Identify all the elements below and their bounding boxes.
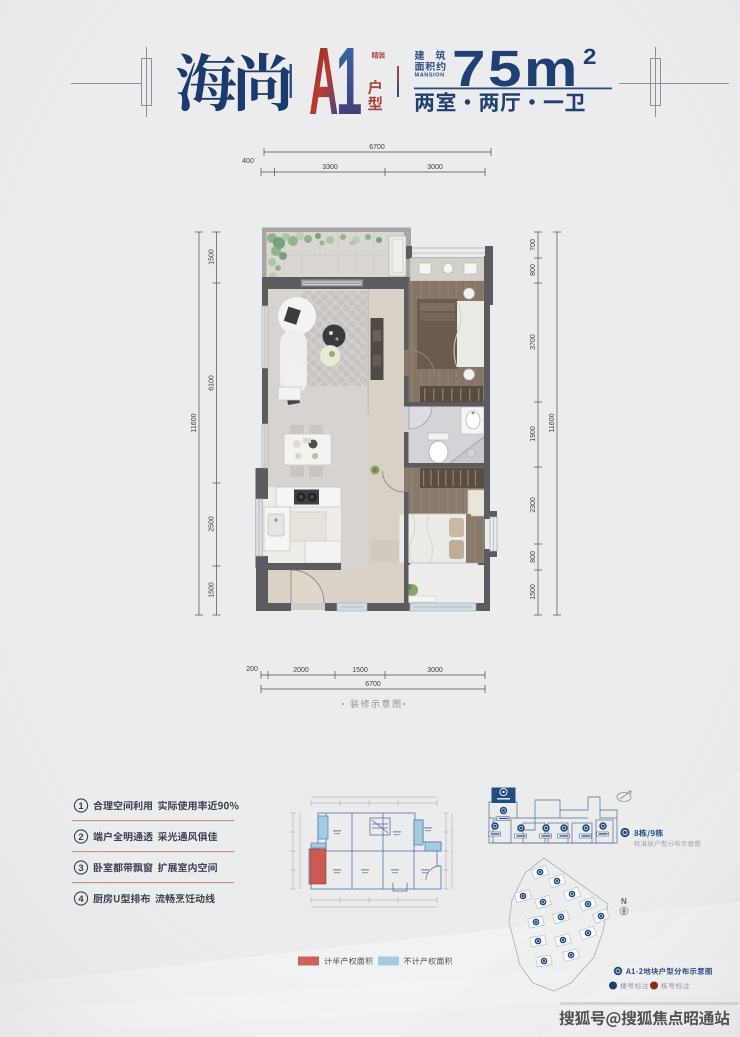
svg-text:3: 3: [78, 863, 83, 874]
svg-text:1500: 1500: [352, 667, 368, 674]
svg-text:1500: 1500: [530, 584, 537, 600]
svg-text:200: 200: [246, 666, 258, 673]
svg-text:3000: 3000: [427, 164, 443, 171]
svg-text:6700: 6700: [369, 144, 385, 151]
svg-text:3300: 3300: [322, 164, 338, 171]
svg-text:2000: 2000: [293, 667, 309, 674]
svg-text:1500: 1500: [209, 582, 216, 598]
svg-text:6100: 6100: [209, 375, 216, 391]
svg-text:3700: 3700: [530, 334, 537, 350]
svg-text:2300: 2300: [530, 497, 537, 513]
svg-text:1: 1: [78, 801, 84, 812]
svg-text:6700: 6700: [365, 681, 381, 688]
svg-text:1500: 1500: [209, 249, 216, 265]
svg-text:4: 4: [78, 894, 84, 905]
svg-text:800: 800: [530, 264, 537, 276]
svg-text:700: 700: [530, 239, 537, 251]
svg-text:N: N: [621, 897, 627, 906]
svg-text:2500: 2500: [209, 516, 216, 532]
svg-text:400: 400: [242, 158, 254, 165]
svg-text:3000: 3000: [427, 667, 443, 674]
svg-text:2: 2: [78, 832, 83, 843]
svg-text:800: 800: [530, 551, 537, 563]
svg-text:1900: 1900: [530, 426, 537, 442]
svg-text:11600: 11600: [549, 413, 556, 432]
svg-text:MANSION: MANSION: [415, 73, 445, 79]
svg-text:11600: 11600: [191, 413, 198, 432]
